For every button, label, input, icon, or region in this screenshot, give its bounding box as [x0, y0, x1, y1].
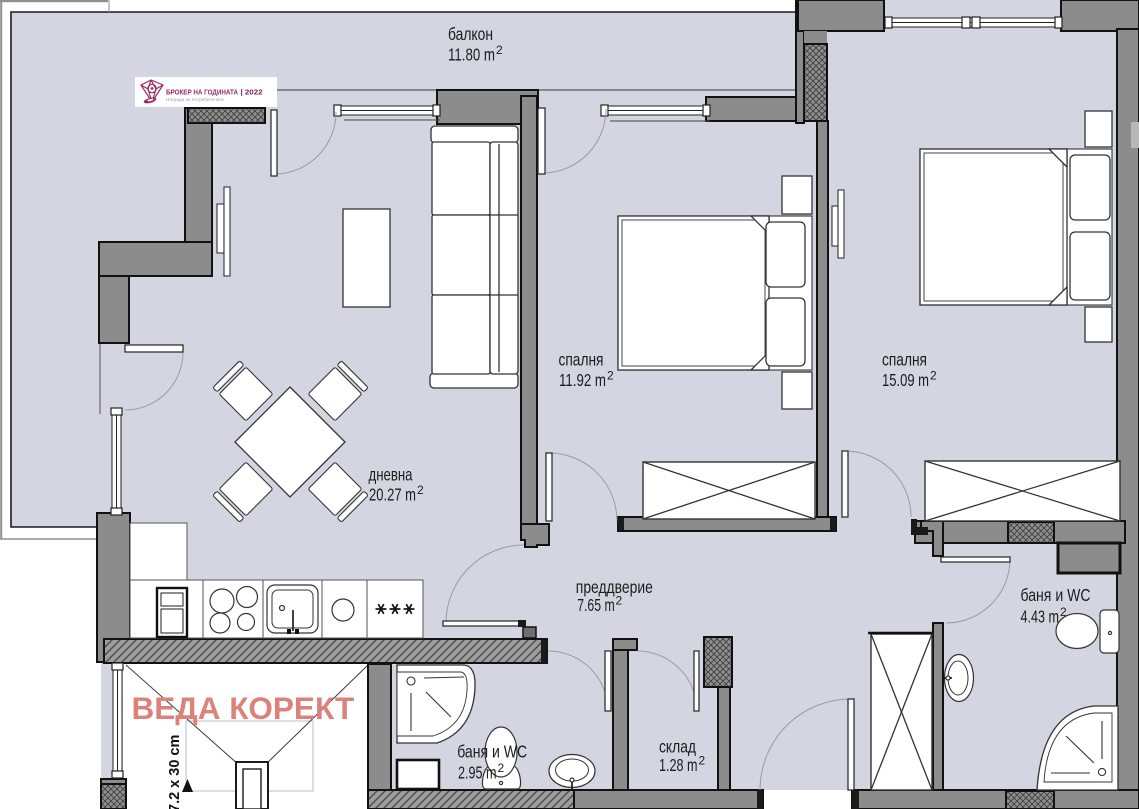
svg-text:Награда на потребителите: Награда на потребителите [166, 97, 224, 103]
svg-text:2: 2 [607, 368, 614, 382]
svg-text:спалня: спалня [559, 349, 604, 369]
svg-text:20.27 m: 20.27 m [369, 485, 416, 505]
svg-text:спалня: спалня [882, 349, 927, 369]
svg-text:7.2 x 30 cm: 7.2 x 30 cm [167, 735, 183, 809]
svg-text:2.95 m: 2.95 m [458, 763, 497, 783]
svg-text:15.09 m: 15.09 m [882, 370, 929, 390]
svg-text:7.65 m: 7.65 m [577, 595, 615, 615]
svg-text:2: 2 [616, 594, 623, 608]
svg-text:баня и WC: баня и WC [457, 742, 527, 762]
svg-text:БРОКЕР НА ГОДИНАТА: БРОКЕР НА ГОДИНАТА [166, 88, 238, 97]
svg-text:2: 2 [496, 43, 503, 57]
svg-text:2: 2 [498, 761, 505, 775]
svg-text:2: 2 [417, 483, 424, 497]
svg-text:1.28 m: 1.28 m [659, 755, 698, 775]
svg-text:склад: склад [659, 737, 696, 757]
svg-text:11.80 m: 11.80 m [448, 45, 495, 65]
svg-text:| 2022: | 2022 [241, 88, 263, 97]
svg-text:дневна: дневна [369, 465, 413, 485]
svg-text:2: 2 [699, 753, 706, 767]
svg-text:4.43 m: 4.43 m [1021, 607, 1060, 627]
svg-text:2: 2 [930, 368, 937, 382]
svg-text:балкон: балкон [448, 24, 493, 44]
svg-text:11.92 m: 11.92 m [559, 370, 606, 390]
svg-text:2: 2 [1060, 605, 1067, 619]
svg-text:ВЕДА КОРЕКТ: ВЕДА КОРЕКТ [132, 690, 355, 726]
svg-text:баня и WC: баня и WC [1021, 585, 1091, 605]
svg-text:преддверие: преддверие [576, 577, 653, 597]
